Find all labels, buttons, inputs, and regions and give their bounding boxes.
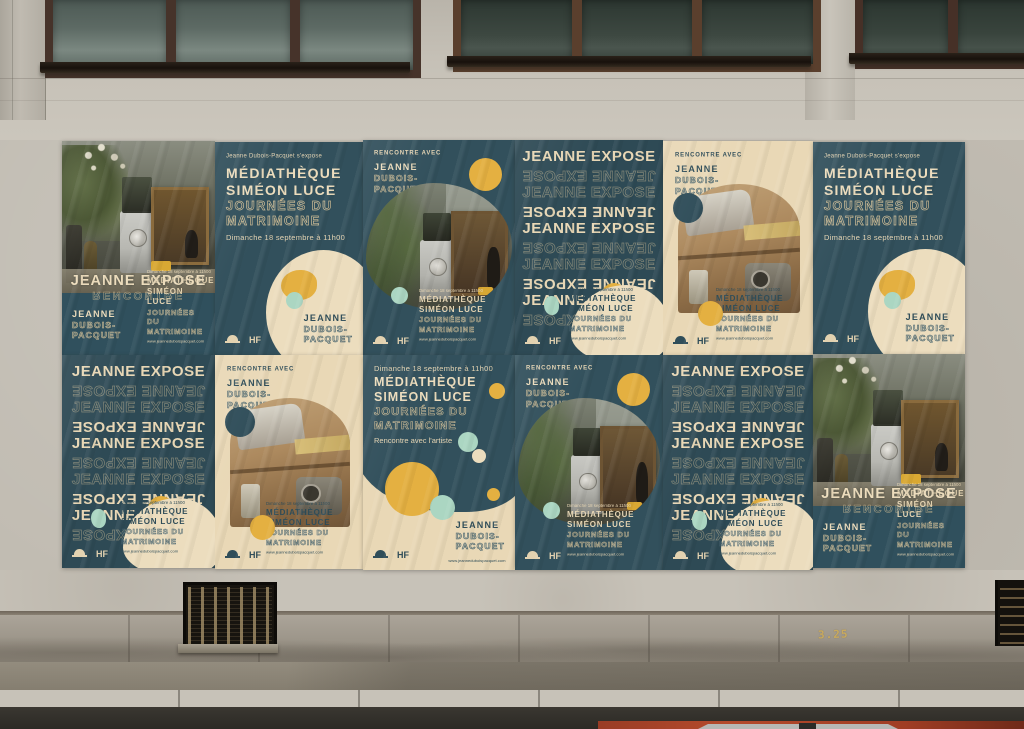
hf-logo: HF [697,551,709,561]
event-date: Dimanche 18 septembre à 11h00 [226,233,345,242]
wall-marking: 3.25 [818,627,849,641]
event-info: Dimanche 18 septembre à 11h00 MÉDIATHÈQU… [567,500,655,561]
window-pane [53,0,166,70]
hf-logo: HF [397,336,409,346]
event-info: Dimanche 18 septembre à 11h00 MÉDIATHÈQU… [419,285,507,346]
yellow-circle [489,383,505,399]
car-windshield [698,724,898,729]
car-detail [799,723,816,729]
meet-label: RENCONTRE AVEC [675,152,742,158]
event-date: Dimanche 18 septembre à 11h00 [374,364,493,373]
partner-logos: HF [823,334,859,344]
facade-joint-line [0,100,1024,101]
poster-typographic: JEANNE EXPOSE JEANNE EXPOSE JEANNE EXPOS… [663,355,813,570]
basement-grate [183,582,277,650]
partner-logos: HF [225,550,261,560]
window-sill [40,62,410,73]
teal-circle [225,407,255,437]
poster-title-mirror: RENCONTRE [62,289,215,301]
painting-frame [600,426,656,511]
poster-archive-photo: RENCONTRE AVEC JEANNE DUBOIS- PACQUET Di… [663,141,813,355]
partner-logos: HF [525,551,561,561]
window-pane [176,0,289,70]
event-info: Dimanche 18 septembre à 11h00 MÉDIATHÈQU… [266,498,354,559]
poster-photo-blob: RENCONTRE AVEC JEANNE DUBOIS- PACQUET Di… [515,355,663,570]
partner-logos: HF [225,335,261,345]
window-pane [863,0,948,61]
grate-slats [1000,582,1024,644]
mint-circle [543,502,560,519]
grate-bars [188,587,272,645]
mint-circle [391,287,408,304]
shelf-edge [230,462,350,474]
dome-logo [72,549,87,559]
window-pane [958,0,1024,61]
meet-artist-label: Rencontre avec l'artiste [374,436,452,445]
poster-archive-photo: RENCONTRE AVEC JEANNE DUBOIS- PACQUET Di… [215,355,363,569]
artist-name: JEANNE DUBOIS- PACQUET [456,520,505,553]
jar-shape [689,270,709,304]
dome-logo [525,551,540,561]
event-name: JOURNÉES DU MATRIMOINE [824,199,931,229]
meet-label: RENCONTRE AVEC [374,150,441,156]
curb [0,690,1024,707]
painting [154,190,206,262]
dome-logo [225,550,240,560]
jar-shape [241,484,260,518]
painting-figure [636,462,648,503]
blender-dial [429,258,447,276]
grate-sill [178,644,278,653]
event-date: Dimanche 18 septembre à 11h00 [824,233,943,242]
poster-title: JEANNE EXPOSE [813,486,965,502]
poster-mediatheque-text: Jeanne Dubois-Pacquet s'expose MÉDIATHÈQ… [813,142,965,354]
poster-typographic: JEANNE EXPOSE JEANNE EXPOSE JEANNE EXPOS… [62,355,215,568]
partner-logos: HF [373,336,409,346]
blender-jar [122,177,152,213]
dome-logo [373,336,388,346]
hf-logo: HF [96,549,108,559]
mint-blob [91,509,106,528]
mint-blob [692,511,707,530]
event-name: JOURNÉES DU MATRIMOINE [226,199,333,229]
teal-circle [673,193,703,223]
shelf-edge [678,248,800,261]
venue-name: MÉDIATHÈQUE SIMÉON LUCE [374,375,476,405]
artist-name: JEANNE DUBOIS- PACQUET [72,309,121,342]
cream-circle [472,449,486,463]
concrete-pilaster-left [0,0,46,120]
blender-dial [880,442,898,460]
blender-jar [423,213,451,241]
flowers-shape [829,354,881,390]
dome-logo [525,336,540,346]
partner-logos: HF [373,550,409,560]
painting-figure [487,247,499,288]
mint-circle [286,292,303,309]
partner-logos: HF [673,551,709,561]
partner-logos: HF [72,549,108,559]
blender-shape [120,211,154,273]
poster-jeanne-expose-photo: JEANNE EXPOSE RENCONTRE JEANNE DUBOIS- P… [813,354,965,568]
partner-logos: HF [673,336,709,346]
event-info: Dimanche 18 septembre à 11h00 MÉDIATHÈQU… [569,284,649,345]
poster-photo-blob: RENCONTRE AVEC JEANNE DUBOIS- PACQUET Di… [363,140,515,355]
hf-logo: HF [847,334,859,344]
dome-logo [225,335,240,345]
basement-grate-right [995,580,1024,646]
hf-logo: HF [397,550,409,560]
painting-figure [935,443,948,471]
poster-typographic: JEANNE EXPOSE JEANNE EXPOSE JEANNE EXPOS… [515,140,663,355]
facade-joint-line [0,78,1024,79]
poster-title-mirror: RENCONTRE [813,502,965,514]
poster-tagline: Jeanne Dubois-Pacquet s'expose [226,153,322,159]
blender-jar [873,390,903,426]
painting-frame [451,211,508,296]
event-info: Dimanche 18 septembre à 11h00 MÉDIATHÈQU… [716,284,804,345]
painting-figure [185,230,198,258]
hf-logo: HF [549,551,561,561]
blender-dial [579,473,597,491]
window-pane [702,0,813,64]
event-info: Dimanche 18 septembre à 11h00 MÉDIATHÈQU… [719,499,799,560]
painting [904,403,956,475]
venue-name: MÉDIATHÈQUE SIMÉON LUCE [226,165,342,199]
concrete-seam [12,0,13,120]
window-sill [849,53,1024,64]
blender-dial [129,229,147,247]
poster-shapes: Dimanche 18 septembre à 11h00 MÉDIATHÈQU… [363,355,515,570]
stone-base-course [0,615,1024,662]
poster-jeanne-expose-photo: JEANNE EXPOSE RENCONTRE JEANNE DUBOIS- P… [62,141,215,355]
painting-frame [151,187,209,265]
sidewalk [0,662,1024,690]
event-name: JOURNÉES DU MATRIMOINE [374,406,468,433]
lower-plaster-wall [0,570,1024,613]
partner-logos: HF [525,336,561,346]
hf-logo: HF [249,550,261,560]
hf-logo: HF [549,336,561,346]
yellow-circle-small [487,488,500,501]
dome-logo [823,334,838,344]
yellow-circle [698,301,723,326]
blender-jar [573,428,600,456]
mint-circle [884,292,901,309]
artist-name: JEANNE DUBOIS- PACQUET [906,312,955,345]
window-pane [461,0,572,64]
poster-mediatheque-text: Jeanne Dubois-Pacquet s'expose MÉDIATHÈQ… [215,142,363,355]
yellow-circle [250,515,275,540]
blender-shape [871,424,905,486]
meet-label: RENCONTRE AVEC [227,366,294,372]
stone-stains [0,615,1024,662]
window-sill [447,56,811,67]
poster-title: JEANNE EXPOSE [62,273,215,289]
artist-name: JEANNE DUBOIS- PACQUET [823,522,872,555]
dome-logo [673,336,688,346]
artist-name: JEANNE DUBOIS- PACQUET [304,313,353,346]
hf-logo: HF [249,335,261,345]
painting-frame [901,400,959,478]
website-url: www.jeanneduboispacquet.com [448,559,505,563]
hf-logo: HF [697,336,709,346]
dome-logo [373,550,388,560]
meet-label: RENCONTRE AVEC [526,365,593,371]
venue-name: MÉDIATHÈQUE SIMÉON LUCE [824,165,940,199]
flowers-shape [78,141,130,177]
window-pane [582,0,693,64]
window-pane [300,0,413,70]
event-info: Dimanche 18 septembre à 11h00 MÉDIATHÈQU… [121,497,201,558]
poster-tagline: Jeanne Dubois-Pacquet s'expose [824,153,920,159]
mint-circle [430,495,455,520]
dome-logo [673,551,688,561]
mint-blob [544,296,559,315]
sidewalk-shadow [0,662,1024,690]
